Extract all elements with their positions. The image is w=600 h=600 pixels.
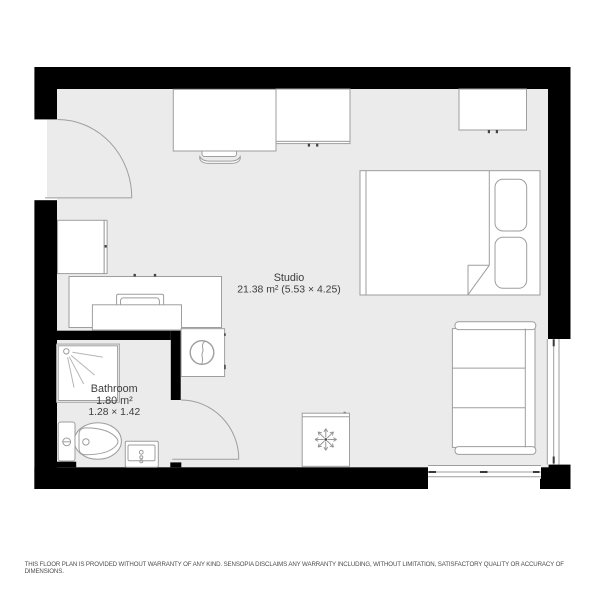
svg-text:1.28 × 1.42: 1.28 × 1.42 — [88, 407, 140, 418]
svg-text:THIS FLOOR PLAN IS PROVIDED WI: THIS FLOOR PLAN IS PROVIDED WITHOUT WARR… — [25, 561, 565, 568]
svg-text:DIMENSIONS.: DIMENSIONS. — [25, 568, 65, 575]
svg-text:Studio: Studio — [274, 272, 305, 284]
svg-text:Bathroom: Bathroom — [91, 383, 138, 395]
svg-text:21.38 m² (5.53 × 4.25): 21.38 m² (5.53 × 4.25) — [237, 284, 341, 295]
svg-text:1.80 m²: 1.80 m² — [96, 395, 133, 407]
